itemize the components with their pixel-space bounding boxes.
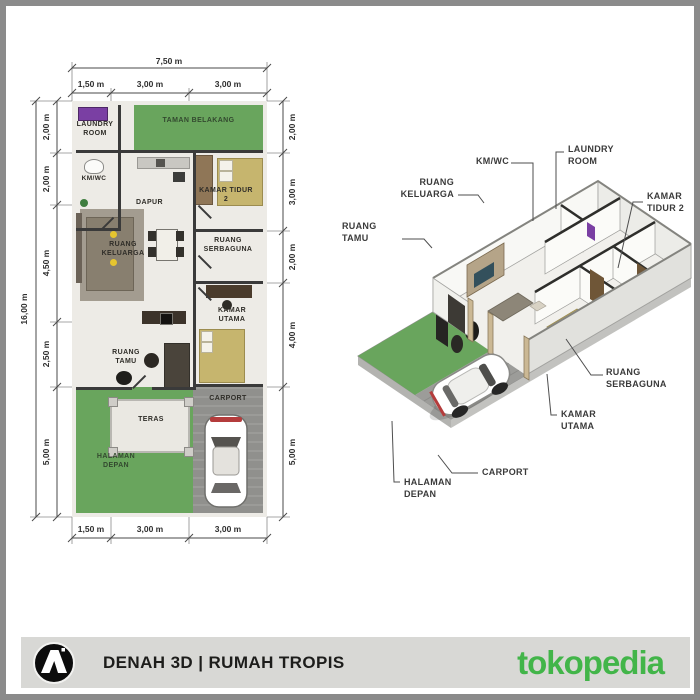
dim-left-1: 2,00 m <box>41 104 53 150</box>
dining-table <box>156 229 178 261</box>
dim-top-2: 3,00 m <box>128 79 172 89</box>
dim-top-total: 7,50 m <box>147 56 191 66</box>
floorplan-product-image: LAUNDRY ROOM TAMAN BELAKANG KM/WC DAPUR … <box>0 0 700 700</box>
dim-right-5: 5,00 m <box>287 429 299 475</box>
floor-plan-2d: LAUNDRY ROOM TAMAN BELAKANG KM/WC DAPUR … <box>72 101 267 517</box>
plant-2d <box>116 371 132 385</box>
house-3d-render <box>358 181 691 428</box>
zone-taman-belakang <box>134 105 263 153</box>
room-label-dapur: DAPUR <box>127 199 172 208</box>
dim-right-4: 4,00 m <box>287 312 299 358</box>
room-label-tidur2: KAMAR TIDUR 2 <box>198 187 254 205</box>
zone-teras <box>110 399 190 453</box>
label3d-halaman: HALAMAN DEPAN <box>404 477 466 500</box>
dim-left-5: 5,00 m <box>41 429 53 475</box>
dim-right-1: 2,00 m <box>287 104 299 150</box>
label3d-utama: KAMAR UTAMA <box>561 409 611 432</box>
dim-right-2: 3,00 m <box>287 169 299 215</box>
room-label-kmwc: KM/WC <box>72 175 116 183</box>
tokopedia-wordmark: tokopedia <box>517 644 664 682</box>
label3d-carport: CARPORT <box>482 467 544 479</box>
dim-bottom-1: 1,50 m <box>69 524 113 534</box>
dim-bottom-2: 3,00 m <box>128 524 172 534</box>
image-title: DENAH 3D | RUMAH TROPIS <box>103 637 345 688</box>
room-label-serbaguna: RUANG SERBAGUNA <box>196 237 260 255</box>
sofa-tamu <box>164 343 190 389</box>
dim-bottom-3: 3,00 m <box>206 524 250 534</box>
car-top-view-icon <box>202 413 250 509</box>
dim-right-3: 2,00 m <box>287 234 299 280</box>
room-label-teras: TERAS <box>128 416 174 425</box>
plant-3d <box>451 335 463 353</box>
footer-bar: DENAH 3D | RUMAH TROPIS tokopedia <box>21 637 690 688</box>
desk-utama <box>206 285 252 298</box>
label3d-kmwc: KM/WC <box>461 156 509 168</box>
dim-left-3: 4,50 m <box>41 240 53 286</box>
pillar-3d <box>524 336 529 380</box>
label3d-tamu: RUANG TAMU <box>342 221 392 244</box>
dim-top-3: 3,00 m <box>206 79 250 89</box>
arch-monogram-icon <box>31 640 77 686</box>
room-label-halaman: HALAMAN DEPAN <box>84 453 148 471</box>
label3d-laundry: LAUNDRY ROOM <box>568 144 626 167</box>
toilet-icon <box>84 159 104 174</box>
dim-left-4: 2,50 m <box>41 331 53 377</box>
room-label-tamu: RUANG TAMU <box>105 349 147 367</box>
washing-machine-icon <box>78 107 108 121</box>
room-label-laundry: LAUNDRY ROOM <box>73 121 117 139</box>
room-label-taman: TAMAN BELAKANG <box>134 117 263 126</box>
stove-icon <box>173 172 185 182</box>
pillar-3d <box>488 312 493 356</box>
label3d-tidur2: KAMAR TIDUR 2 <box>647 191 697 214</box>
dim-top-1: 1,50 m <box>69 79 113 89</box>
label3d-serbaguna: RUANG SERBAGUNA <box>606 367 678 390</box>
dim-left-total: 16,00 m <box>19 286 31 332</box>
room-label-keluarga: RUANG KELUARGA <box>94 241 152 259</box>
pillar-3d <box>468 298 473 342</box>
room-label-carport: CARPORT <box>196 395 260 404</box>
label3d-keluarga: RUANG KELUARGA <box>392 177 454 200</box>
dim-left-2: 2,00 m <box>41 156 53 202</box>
room-label-utama: KAMAR UTAMA <box>204 307 260 325</box>
